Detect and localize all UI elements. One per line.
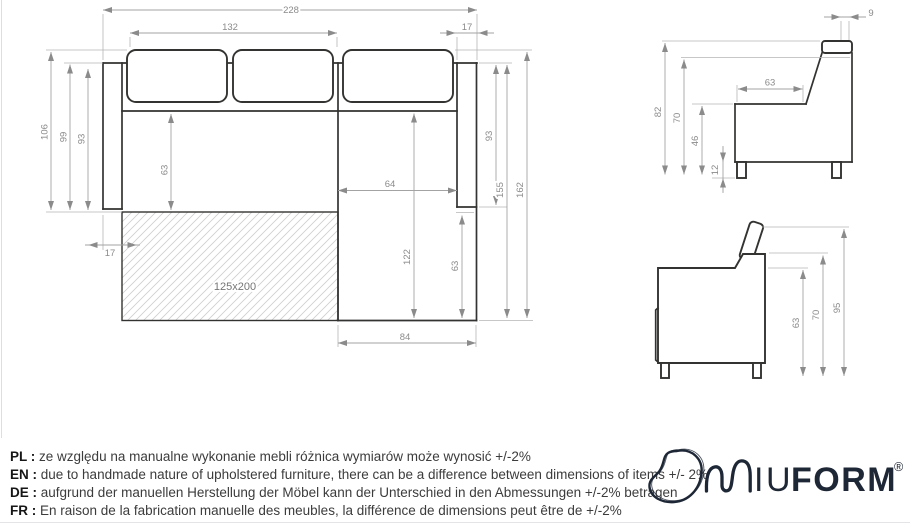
dim-seat-height-b: 63: [791, 318, 802, 329]
dim-chaise-depth: 63: [450, 261, 461, 272]
dim-total-width: 228: [283, 5, 299, 16]
dim-right-length: 162: [515, 182, 526, 198]
disclaimer-text-de: aufgrund der manuellen Herstellung der M…: [41, 485, 678, 500]
dim-right-length-inner: 155: [495, 182, 506, 198]
side-view-seat-extension-lines: [762, 227, 849, 268]
dim-armrest-top: 17: [462, 22, 473, 33]
leg: [737, 162, 746, 178]
body: [658, 254, 765, 363]
headrest: [822, 41, 852, 53]
dim-chaise-inner: 64: [385, 179, 396, 190]
dim-seat-depth-a: 63: [765, 78, 776, 89]
dim-back-height-b: 70: [811, 310, 822, 321]
leg: [661, 363, 669, 378]
logo-m-glyph: [706, 461, 750, 491]
side-view-back-outline: [735, 41, 852, 178]
bean-icon: [649, 449, 703, 502]
dim-headrest-depth: 9: [868, 8, 873, 19]
top-view-sofa: 228 132 17 106 99 93 17 63 64 122 63 93 …: [40, 5, 534, 347]
bottom-border-line: [0, 522, 910, 523]
disclaimer: PL : ze względu na manualne wykonanie me…: [10, 448, 708, 520]
cushion-middle: [233, 50, 333, 102]
disclaimer-row-en: EN : due to handmade nature of upholster…: [10, 466, 708, 484]
disclaimer-text-pl: ze względu na manualne wykonanie mebli r…: [39, 449, 531, 464]
furniture-dimension-sheet: 228 132 17 106 99 93 17 63 64 122 63 93 …: [0, 0, 910, 530]
side-view-seat-dimension-lines: [803, 229, 844, 376]
dim-seat-width: 132: [222, 22, 238, 33]
side-view-seat: 63 70 95: [656, 221, 849, 378]
dim-seat-height-a: 46: [690, 136, 701, 147]
dim-chaise-width: 84: [400, 332, 411, 343]
logo-text-iu: IU: [754, 461, 793, 499]
leg: [832, 162, 841, 178]
cushion-left: [127, 50, 227, 102]
disclaimer-lang-de: DE :: [10, 485, 37, 500]
disclaimer-lang-fr: FR :: [10, 503, 36, 518]
back-cushions: [127, 50, 453, 102]
dim-chaise-length: 122: [402, 249, 413, 265]
disclaimer-row-fr: FR : En raison de la fabrication manuell…: [10, 502, 708, 520]
dim-depth-total: 106: [40, 124, 51, 140]
disclaimer-lang-pl: PL :: [10, 449, 35, 464]
disclaimer-lang-en: EN :: [10, 467, 37, 482]
dim-height-back-a: 70: [672, 113, 683, 124]
disclaimer-row-de: DE : aufgrund der manuellen Herstellung …: [10, 484, 708, 502]
leg: [753, 363, 761, 378]
bed-area-hatch: [122, 212, 338, 321]
dim-bed-offset: 17: [105, 248, 116, 259]
dim-seat-depth: 63: [160, 165, 171, 176]
registered-trademark-symbol: ®: [894, 460, 904, 474]
disclaimer-text-fr: En raison de la fabrication manuelle des…: [40, 503, 622, 518]
technical-drawing: 228 132 17 106 99 93 17 63 64 122 63 93 …: [0, 0, 910, 445]
dim-depth-inner: 93: [77, 134, 88, 145]
logo-text-form: FORM: [791, 461, 897, 499]
dim-depth-back: 99: [59, 132, 70, 143]
dim-right-depth: 93: [484, 131, 495, 142]
dim-height-total-a: 82: [653, 107, 664, 118]
side-view-back: 9 82 70 63 46 12: [653, 8, 874, 193]
cushion-right: [343, 50, 453, 102]
miuform-logo: IU FORM ®: [640, 446, 910, 510]
dim-height-total-b: 95: [832, 303, 843, 314]
side-view-seat-outline: [656, 221, 765, 378]
disclaimer-row-pl: PL : ze względu na manualne wykonanie me…: [10, 448, 708, 466]
dim-leg-height: 12: [710, 165, 721, 176]
disclaimer-text-en: due to handmade nature of upholstered fu…: [41, 467, 708, 482]
bed-size-label: 125x200: [214, 281, 256, 293]
